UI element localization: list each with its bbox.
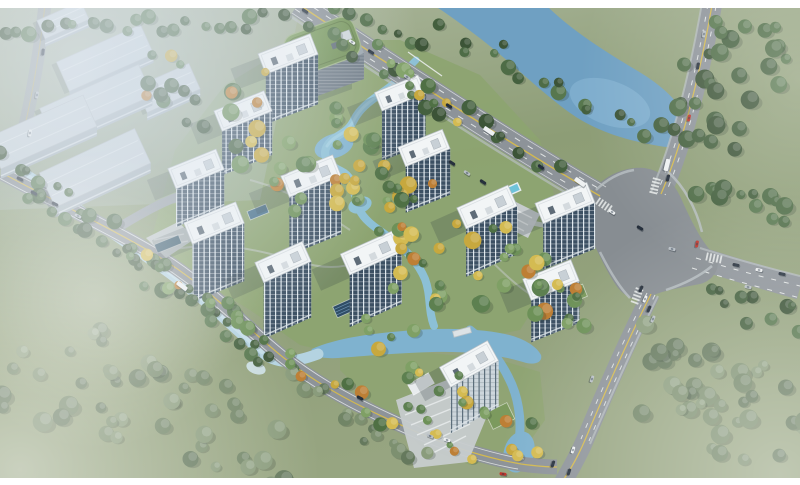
haze-glow: [580, 0, 800, 300]
top-margin: [0, 0, 800, 8]
bottom-margin: [0, 478, 800, 485]
scene-svg: [0, 0, 800, 485]
haze-glow: [0, 150, 245, 450]
aerial-masterplan-render: [0, 0, 800, 485]
